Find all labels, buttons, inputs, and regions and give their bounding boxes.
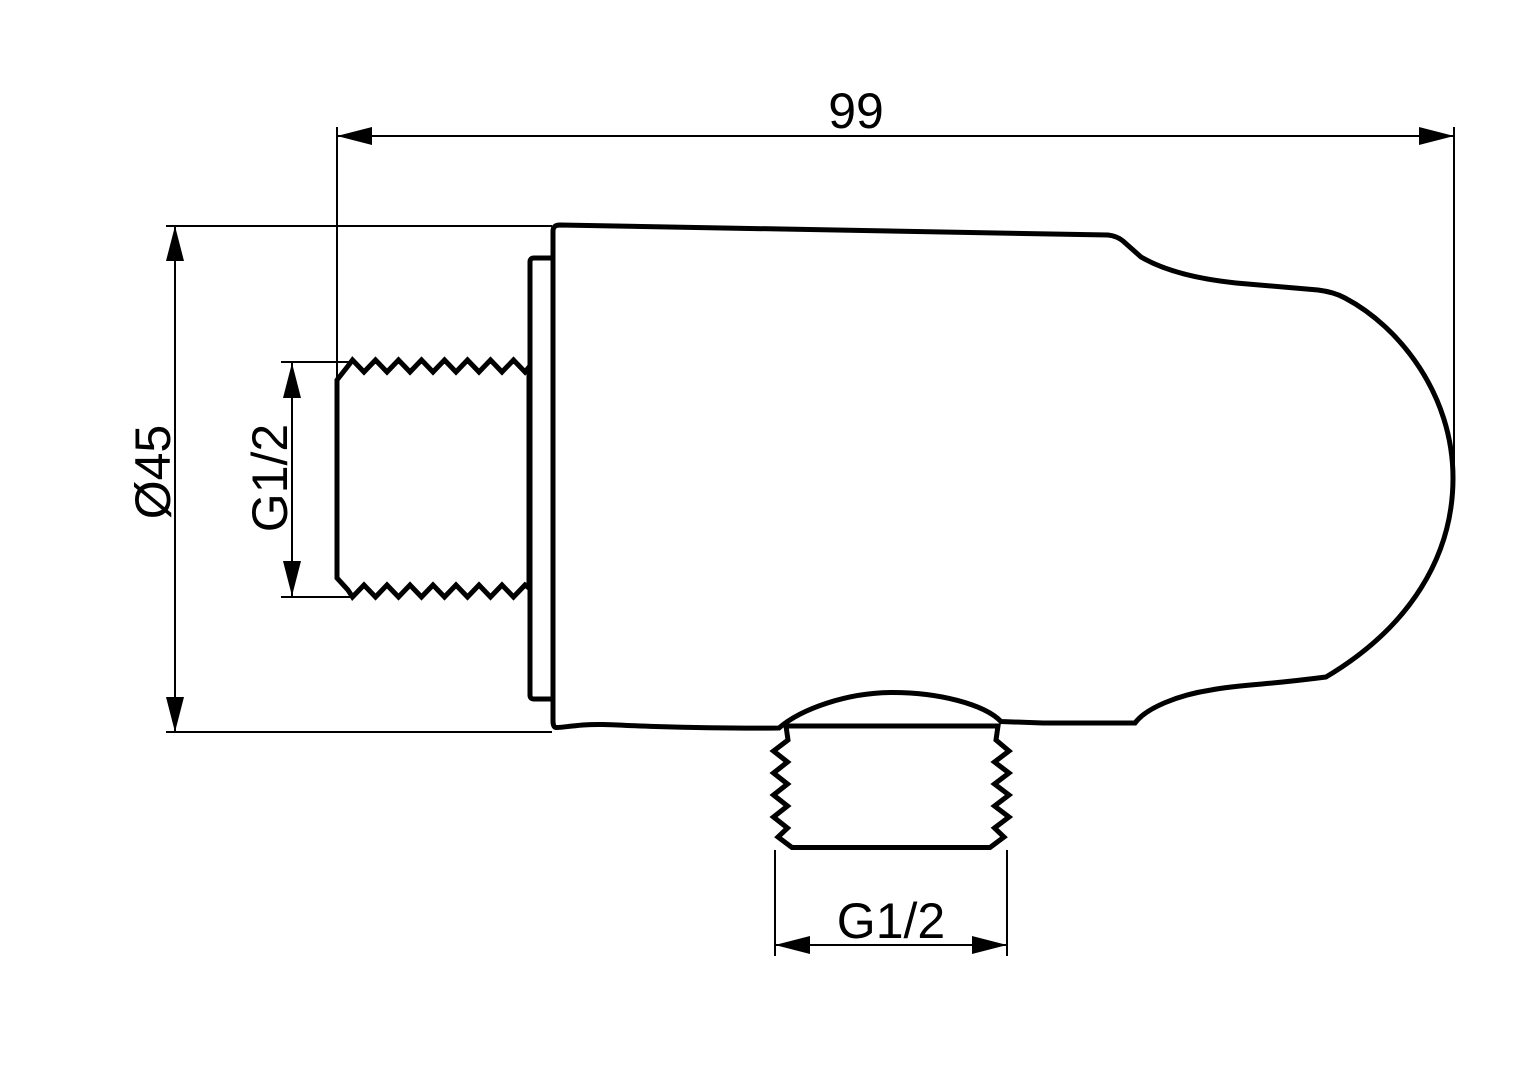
dim-outlet-thread: G1/2 <box>775 850 1007 956</box>
dim-inlet-thread-label: G1/2 <box>242 424 298 532</box>
dim-outlet-thread-label: G1/2 <box>837 893 945 949</box>
part-shapes <box>337 225 1453 848</box>
arrow-down-icon <box>166 697 184 732</box>
arrow-down-icon <box>283 561 301 596</box>
dim-overall-length-label: 99 <box>828 83 884 139</box>
arrow-up-icon <box>283 363 301 398</box>
arrow-right-icon <box>1419 127 1454 145</box>
mounting-flange <box>530 258 553 699</box>
dim-diameter-label: Ø45 <box>125 425 181 520</box>
dim-inlet-thread: G1/2 <box>242 362 350 597</box>
body-outline <box>553 225 1453 728</box>
arrow-left-icon <box>337 127 372 145</box>
technical-drawing-page: 99 Ø45 G1/2 G1/2 <box>0 0 1528 1080</box>
arrow-left-icon <box>775 936 810 954</box>
outlet-thread <box>774 726 1010 848</box>
arrow-right-icon <box>972 936 1007 954</box>
inlet-thread-pipe <box>337 360 529 597</box>
arrow-up-icon <box>166 226 184 261</box>
technical-drawing-canvas: 99 Ø45 G1/2 G1/2 <box>0 0 1528 1080</box>
